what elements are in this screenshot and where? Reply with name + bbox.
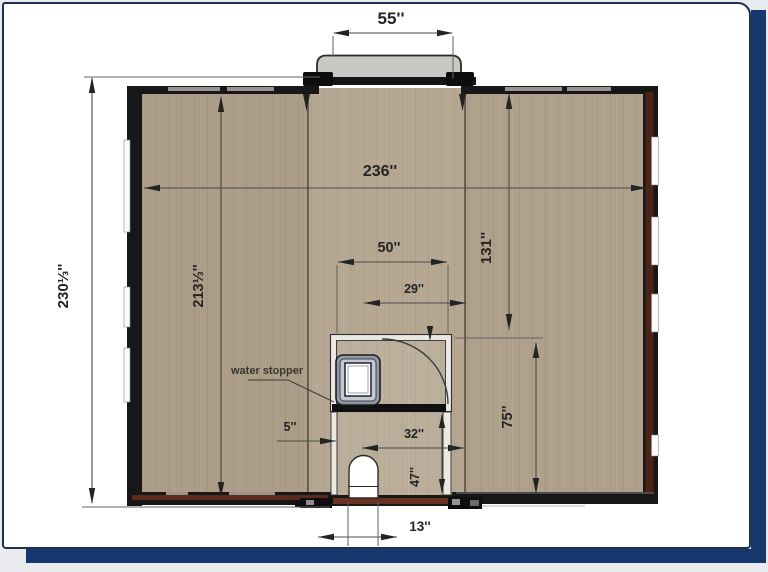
dimension-label: 50'' <box>377 240 400 256</box>
dimension-label: 32'' <box>404 427 424 441</box>
floor-right-section <box>465 88 649 499</box>
toilet <box>349 455 378 498</box>
dimension-entry-width: 13'' <box>318 502 431 546</box>
floor-left-section <box>141 88 308 499</box>
dimension-label: 75'' <box>500 405 516 428</box>
dimension-label: 55'' <box>378 9 405 28</box>
bathroom <box>330 326 452 498</box>
window-left-3 <box>124 348 130 402</box>
canopy-bracket-left <box>303 72 333 86</box>
window-right-3 <box>652 294 659 332</box>
dimension-label: 230⅓'' <box>55 264 72 309</box>
window-left-1 <box>124 140 130 232</box>
dimension-label: 5'' <box>284 420 297 434</box>
dimension-label: 29'' <box>404 282 424 296</box>
canopy-bracket-right <box>446 72 474 86</box>
slide: 55'' 230⅓'' 236'' 213⅓'' <box>0 0 768 572</box>
dimension-label: 13'' <box>409 519 430 534</box>
water-stopper-label: water stopper <box>230 365 304 377</box>
window-right-4 <box>652 435 659 456</box>
wall-top-left <box>127 86 319 94</box>
window-right-2 <box>652 217 659 265</box>
floor-plan-drawing: 55'' 230⅓'' 236'' 213⅓'' <box>0 0 768 572</box>
window-right-1 <box>652 137 659 185</box>
dimension-label: 213⅓'' <box>191 264 207 307</box>
shower-tray <box>336 355 380 405</box>
dimension-label: 236'' <box>363 163 397 180</box>
window-left-2 <box>124 287 130 327</box>
dimension-label: 131'' <box>478 232 495 264</box>
rear-room-wall-left <box>331 412 337 495</box>
dimension-label: 47'' <box>408 467 422 487</box>
